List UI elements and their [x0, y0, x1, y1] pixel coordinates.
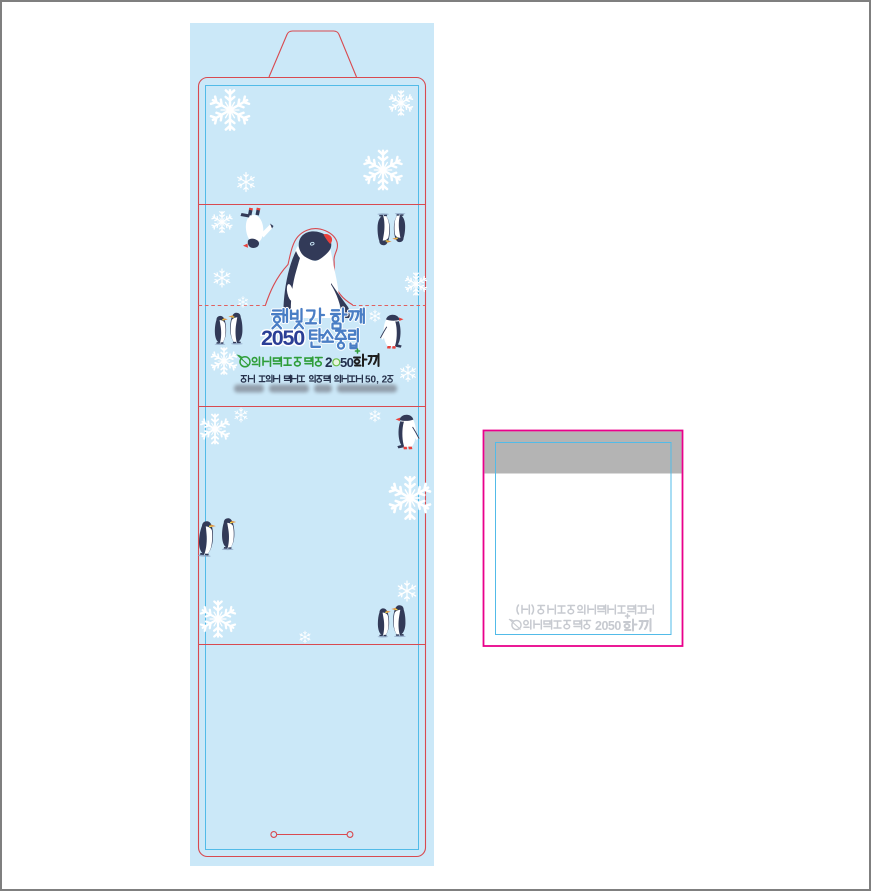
svg-text:50: 50 — [340, 355, 354, 370]
svg-text:2050: 2050 — [595, 619, 621, 633]
svg-text:2050: 2050 — [261, 326, 305, 350]
svg-text:2: 2 — [325, 355, 332, 370]
svg-text:50, 2: 50, 2 — [365, 374, 388, 385]
